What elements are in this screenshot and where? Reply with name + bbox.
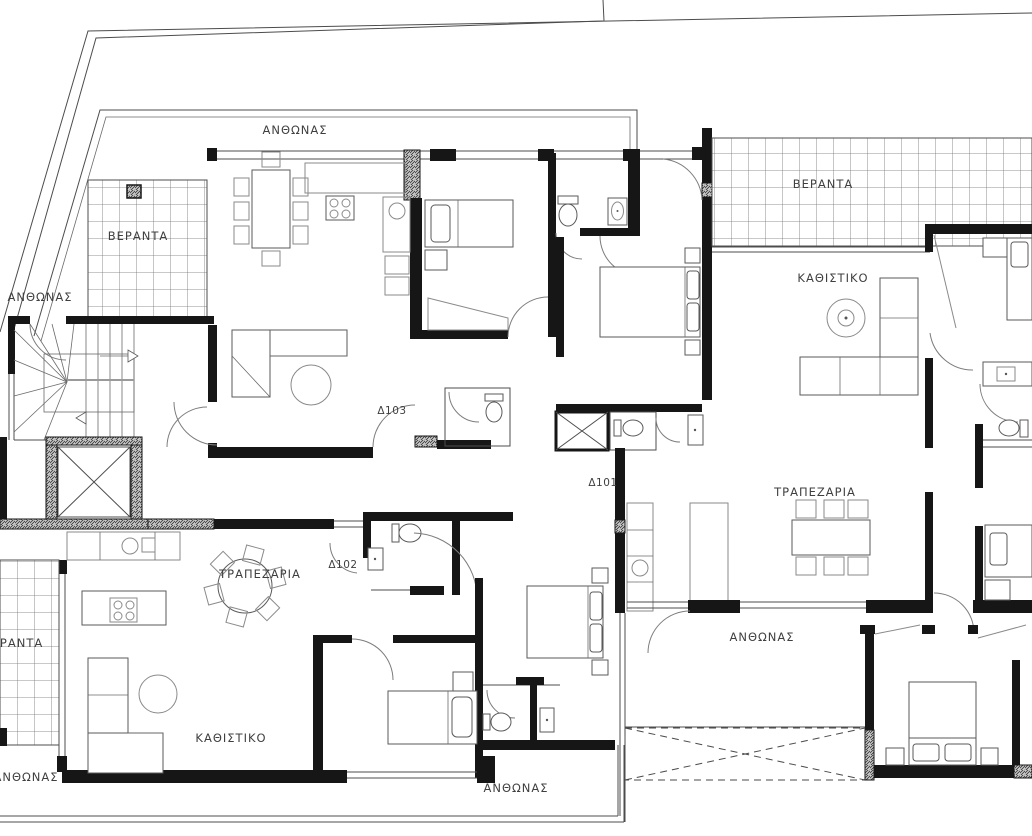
door-arc bbox=[656, 418, 680, 442]
double-bed-icon bbox=[527, 568, 608, 675]
double-bed-icon bbox=[600, 248, 700, 355]
dining-table-icon bbox=[792, 500, 870, 575]
sofa-icon bbox=[232, 330, 347, 397]
site-boundary bbox=[0, 0, 1032, 822]
door-arc bbox=[980, 384, 1018, 422]
light-well-strip bbox=[625, 728, 865, 780]
sink-icon bbox=[983, 362, 1032, 386]
label-veranda-bottom-left: ΒΕΡΑΝΤΑ bbox=[0, 636, 43, 650]
sink-icon bbox=[540, 708, 554, 732]
floor-plan-canvas: ΑΝΘΩΝΑΣ ΒΕΡΑΝΤΑ ΑΝΘΩΝΑΣ ΒΕΡΑΝΤΑ ΚΑΘΙΣΤΙΚ… bbox=[0, 0, 1032, 836]
label-apartment-102: Δ102 bbox=[328, 559, 357, 571]
label-dining-room-right: ΤΡΑΠΕΖΑΡΙΑ bbox=[773, 485, 856, 499]
label-veranda-top-right: ΒΕΡΑΝΤΑ bbox=[793, 177, 853, 191]
kitchen-counter-icon bbox=[67, 532, 180, 560]
coffee-table-icon bbox=[827, 299, 865, 337]
flower-bed-mid bbox=[620, 613, 865, 822]
apartment-101 bbox=[615, 138, 1032, 822]
bedroom-bottom-right bbox=[860, 625, 1032, 780]
single-bed-icon bbox=[425, 200, 513, 270]
sink-icon bbox=[632, 560, 648, 576]
sink-icon bbox=[368, 548, 383, 570]
label-living-room-right: ΚΑΘΙΣΤΙΚΟ bbox=[797, 271, 868, 285]
label-dining-room-left: ΤΡΑΠΕΖΑΡΙΑ bbox=[218, 567, 301, 581]
toilet-icon bbox=[558, 196, 578, 226]
toilet-icon bbox=[485, 394, 503, 422]
round-dining-table-icon bbox=[204, 545, 286, 627]
toilet-icon bbox=[614, 420, 643, 436]
shower-icon bbox=[556, 412, 608, 450]
label-veranda-top-left: ΒΕΡΑΝΤΑ bbox=[108, 229, 168, 243]
kitchen-island-icon bbox=[82, 591, 166, 625]
sink-icon bbox=[122, 538, 138, 554]
coffee-table-icon bbox=[139, 675, 177, 713]
sink-icon bbox=[688, 415, 703, 445]
door-arc bbox=[30, 324, 66, 360]
apartment-102 bbox=[0, 512, 615, 783]
sofa-icon bbox=[88, 658, 163, 773]
core-staircase bbox=[8, 316, 214, 440]
sink-icon bbox=[608, 198, 627, 225]
veranda-bottom-left-tiles bbox=[0, 560, 59, 745]
sofa-icon bbox=[800, 278, 918, 395]
label-flower-bed-bottom: ΑΝΘΩΝΑΣ bbox=[483, 781, 548, 795]
label-flower-bed-left: ΑΝΘΩΝΑΣ bbox=[7, 290, 72, 304]
stairs-icon bbox=[14, 324, 138, 440]
kitchen-counter-icon bbox=[627, 503, 728, 611]
coffee-table-icon bbox=[291, 365, 331, 405]
drain-icon bbox=[127, 185, 141, 198]
label-living-room-left: ΚΑΘΙΣΤΙΚΟ bbox=[195, 731, 266, 745]
door-arc bbox=[167, 407, 207, 447]
dining-table-icon bbox=[234, 152, 308, 266]
toilet-icon bbox=[483, 713, 511, 731]
toilet-icon bbox=[999, 420, 1028, 437]
door-arc bbox=[352, 639, 393, 680]
door-arc bbox=[449, 392, 479, 422]
double-bed-icon bbox=[886, 682, 998, 765]
door-arc bbox=[508, 297, 548, 337]
label-flower-bed-mid: ΑΝΘΩΝΑΣ bbox=[729, 630, 794, 644]
kitchen-counter-icon bbox=[305, 163, 410, 295]
cupboard-icon bbox=[690, 503, 728, 601]
label-flower-bed-top: ΑΝΘΩΝΑΣ bbox=[262, 123, 327, 137]
sink-icon bbox=[389, 203, 405, 219]
single-bed-icon bbox=[983, 238, 1032, 320]
door-arc bbox=[930, 333, 973, 370]
door-arc bbox=[663, 159, 702, 200]
apartment-103 bbox=[167, 128, 712, 458]
label-apartment-103: Δ103 bbox=[377, 405, 406, 417]
single-bed-icon bbox=[388, 672, 477, 744]
door-arc bbox=[648, 611, 690, 653]
veranda-top-left bbox=[88, 180, 207, 318]
label-flower-bed-bottom-left: ΑΝΘΩΝΑΣ bbox=[0, 770, 59, 784]
elevator-shaft bbox=[0, 437, 148, 529]
label-apartment-101: Δ101 bbox=[588, 477, 617, 489]
door-leaf bbox=[934, 235, 956, 328]
single-bed-icon bbox=[985, 525, 1032, 600]
desk-icon bbox=[428, 298, 508, 330]
